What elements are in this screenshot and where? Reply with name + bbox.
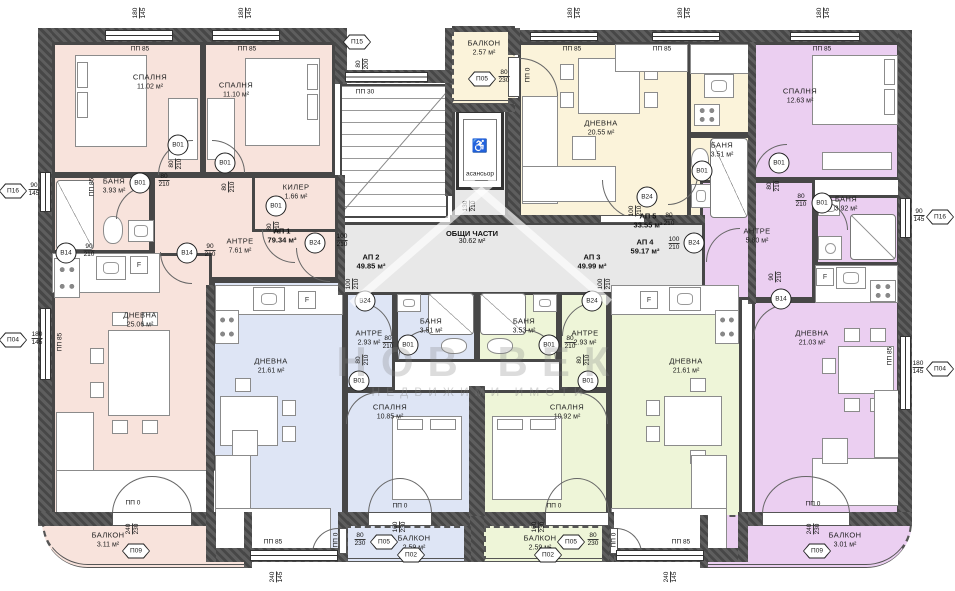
room-label: БАНЯ3.51 м²: [711, 141, 734, 160]
room-name: БАНЯ: [513, 317, 536, 327]
room-area: 2.57 м²: [468, 48, 501, 57]
room-name: СПАЛНЯ: [133, 73, 167, 83]
dim-b: 210: [205, 251, 216, 259]
fridge: F: [816, 268, 834, 286]
door-dim: 80210: [159, 173, 170, 189]
wall: [206, 512, 216, 562]
door-dim: 100210: [669, 236, 680, 252]
door-tag: B01: [215, 153, 236, 174]
dim-a: 80: [565, 335, 576, 342]
furniture: [560, 64, 574, 80]
room-label: КИЛЕР1.66 м²: [283, 183, 310, 202]
furniture: [560, 92, 574, 108]
door-tag: B01: [692, 161, 713, 182]
door-tag: B14: [177, 243, 198, 264]
furniture: [77, 62, 88, 88]
room-name: БАНЯ: [103, 177, 126, 187]
dim-b: 145: [913, 368, 924, 376]
room-area: 12.63 м²: [783, 96, 817, 105]
room-label: СПАЛНЯ11.02 м²: [133, 73, 167, 92]
furniture: [870, 328, 886, 342]
dim-b: 210: [229, 182, 237, 193]
furniture: [646, 426, 660, 442]
dim-b: 145: [246, 8, 254, 19]
window-tag-label: П16: [927, 211, 953, 224]
door-dim: 80210: [576, 355, 592, 366]
dim-a: 80: [664, 212, 675, 219]
dim-b: 210: [664, 220, 675, 228]
furniture: [572, 136, 596, 160]
wall: [445, 104, 515, 112]
room-label: СПАЛНЯ10.85 м²: [373, 403, 407, 422]
dim-b: 210: [636, 206, 644, 217]
common-area-name: ОБЩИ ЧАСТИ: [446, 229, 498, 238]
sink: [836, 267, 866, 289]
room-name: СПАЛНЯ: [783, 87, 817, 97]
door-tag: B14: [56, 243, 77, 264]
dim-b: 230: [355, 540, 366, 548]
wall: [38, 28, 52, 525]
stove: [715, 310, 739, 344]
apartment-area: 49.99 м²: [578, 262, 607, 271]
window-dim: 240230: [125, 524, 141, 535]
room-area: 3.53 м²: [513, 326, 536, 335]
room-area: 7.61 м²: [226, 246, 253, 255]
room-name: БАЛКОН: [398, 534, 431, 544]
room-name: ДНЕВНА: [584, 119, 617, 129]
furniture: [615, 44, 688, 72]
furniture: [690, 378, 706, 392]
fridge: F: [130, 256, 148, 274]
room-area: 10.85 м²: [373, 412, 407, 421]
room-name: БАЛКОН: [829, 531, 862, 541]
room-label: СПАЛНЯ11.10 м²: [219, 81, 253, 100]
furniture: [884, 89, 895, 115]
dimension-pair: 240145: [663, 572, 679, 583]
dim-b: 210: [669, 244, 680, 252]
room-label: БАЛКОН2.57 м²: [468, 39, 501, 58]
room-name: БАЛКОН: [524, 534, 557, 544]
wall: [445, 104, 452, 196]
dim-b: 210: [159, 181, 170, 189]
fridge: F: [298, 291, 316, 309]
window-tag: П04: [0, 333, 27, 348]
window-tag-label: П09: [123, 545, 149, 558]
room-area: 10.92 м²: [550, 412, 584, 421]
dim-b: 145: [914, 216, 925, 224]
furniture: [56, 412, 94, 476]
stove: [694, 104, 720, 126]
door-dim: 80210: [565, 335, 576, 351]
furniture: [646, 400, 660, 416]
furniture: [497, 419, 523, 430]
door-tag: B01: [539, 335, 560, 356]
room-area: 1.66 м²: [283, 192, 310, 201]
window-tag-label: П05: [371, 536, 397, 549]
dim-b: 145: [685, 8, 693, 19]
room-name: АНТРЕ: [571, 329, 598, 339]
window-dim: 180145: [32, 331, 43, 347]
room-name: ДНЕВНА: [123, 311, 156, 321]
dim-a: 80: [221, 182, 228, 193]
door-tag: B24: [637, 187, 658, 208]
furniture: [307, 94, 318, 120]
sill-label: ПП 85: [264, 539, 282, 546]
door-opening: [545, 512, 609, 526]
dim-b: 210: [565, 343, 576, 351]
wall: [602, 526, 609, 562]
dim-b: 210: [605, 279, 613, 290]
room-area: 3.01 м²: [829, 540, 862, 549]
sill-label: ПП 85: [653, 46, 671, 53]
dim-b: 210: [470, 201, 478, 212]
dim-b: 230: [539, 522, 547, 533]
room-area: 21.61 м²: [669, 366, 702, 375]
dim-b: 210: [274, 222, 282, 233]
window: [345, 72, 428, 82]
door-tag: B01: [349, 371, 370, 392]
window: [900, 336, 911, 410]
dim-b: 145: [29, 190, 40, 198]
window-dim: 160230: [392, 522, 408, 533]
room-area: 11.02 м²: [133, 82, 167, 91]
room-area: 3.92 м²: [835, 204, 858, 213]
furniture: [844, 398, 860, 412]
furniture: [282, 400, 296, 416]
dimension-pair: 180145: [567, 8, 583, 19]
room-name: СПАЛНЯ: [550, 403, 584, 413]
sink: [533, 294, 557, 312]
room-label: БАНЯ3.53 м²: [513, 317, 536, 336]
dim-b: 145: [575, 8, 583, 19]
room-area: 2.93 м²: [355, 338, 382, 347]
dim-a: 240: [806, 524, 813, 535]
room-name: ДНЕВНА: [254, 357, 287, 367]
door-dim: 100210: [345, 279, 361, 290]
toilet: [441, 338, 467, 354]
door-dim: 80210: [383, 335, 394, 351]
dim-a: 160: [392, 522, 399, 533]
elevator-label: асансьор: [466, 171, 494, 178]
sill-label: ПП 0: [806, 501, 821, 508]
window-tag-label: П04: [0, 334, 26, 347]
window-dim: 80230: [355, 532, 366, 548]
sill-label: ПП 85: [238, 46, 256, 53]
window: [790, 32, 860, 41]
dim-a: 80: [499, 69, 510, 76]
furniture: [282, 426, 296, 442]
sill-label: ПП 0: [547, 503, 562, 510]
dimension-pair: 240145: [269, 572, 285, 583]
window-tag-label: П05: [558, 536, 584, 549]
window: [212, 30, 280, 41]
dim-b: 145: [32, 339, 43, 347]
dim-a: 80: [796, 193, 807, 200]
room-name: СПАЛНЯ: [219, 81, 253, 91]
door-dim: 80210: [796, 193, 807, 209]
room-label: БАНЯ3.92 м²: [835, 195, 858, 214]
door-tag: B01: [168, 135, 189, 156]
door-dim: 90210: [768, 272, 784, 283]
dim-a: 80: [355, 532, 366, 539]
door-tag: B14: [771, 289, 792, 310]
room-label: ДНЕВНА20.55 м²: [584, 119, 617, 138]
dim-a: 240: [663, 572, 670, 583]
apartment-label: АП 459.17 м²: [631, 238, 660, 257]
dim-a: 80: [766, 181, 773, 192]
room-name: КИЛЕР: [283, 183, 310, 193]
room-area: 20.55 м²: [584, 128, 617, 137]
door-tag: B01: [266, 196, 287, 217]
furniture: [844, 328, 860, 342]
wall: [206, 285, 214, 512]
window: [530, 32, 598, 41]
window-tag-label: П05: [469, 73, 495, 86]
sill-label: ПП 0: [393, 503, 408, 510]
wall: [898, 30, 912, 525]
furniture: [664, 396, 722, 446]
wall: [38, 28, 345, 42]
room-label: БАЛКОН3.11 м²: [92, 531, 125, 550]
sink: [96, 256, 126, 280]
window: [105, 30, 173, 41]
room-label: СПАЛНЯ10.92 м²: [550, 403, 584, 422]
furniture: [90, 382, 104, 398]
dim-a: 80: [266, 222, 273, 233]
door-opening: [112, 512, 192, 526]
window-tag: П15: [343, 35, 371, 50]
dim-b: 230: [400, 522, 408, 533]
apartment-area: 59.17 м²: [631, 247, 660, 256]
dim-b: 210: [774, 181, 782, 192]
door-dim: 100210: [597, 279, 613, 290]
dim-b: 145: [824, 8, 832, 19]
common-area-size: 30.62 м²: [446, 238, 498, 247]
door-tag: B24: [684, 233, 705, 254]
dim-a: 80: [383, 335, 394, 342]
room-area: 3.93 м²: [103, 186, 126, 195]
room-area: 21.61 м²: [254, 366, 287, 375]
apartment-id: АП 4: [631, 238, 660, 247]
dim-b: 230: [133, 524, 141, 535]
dim-b: 145: [140, 8, 148, 19]
dim-b: 145: [277, 572, 285, 583]
dim-a: 90: [914, 208, 925, 215]
window-dim: 240230: [806, 524, 822, 535]
room-name: БАЛКОН: [468, 39, 501, 49]
dim-a: 100: [628, 206, 635, 217]
sink: [128, 220, 154, 242]
sink: [397, 294, 421, 312]
wall: [508, 28, 520, 55]
wheelchair-icon: ♿: [472, 138, 488, 154]
room-area: 11.10 м²: [219, 90, 253, 99]
window: [250, 550, 338, 561]
dimension-pair: 180145: [677, 8, 693, 19]
dim-b: 230: [588, 540, 599, 548]
window-tag-label: П16: [0, 185, 26, 198]
wall: [748, 42, 756, 304]
room-name: БАНЯ: [711, 141, 734, 151]
door-opening: [339, 528, 347, 554]
sill-label: ПП 85: [813, 46, 831, 53]
wall: [452, 26, 515, 32]
window: [40, 172, 51, 212]
dim-b: 145: [671, 572, 679, 583]
furniture: [822, 358, 836, 374]
room-name: БАНЯ: [835, 195, 858, 205]
furniture: [874, 390, 900, 458]
dim-a: 130: [462, 201, 469, 212]
door-tag: B01: [812, 193, 833, 214]
room-name: БАЛКОН: [92, 531, 125, 541]
room-name: БАНЯ: [420, 317, 443, 327]
room-name: ДНЕВНА: [669, 357, 702, 367]
furniture: [690, 44, 750, 74]
room-area: 25.06 м²: [123, 320, 156, 329]
window-tag-label: П15: [344, 36, 370, 49]
stove: [870, 280, 896, 302]
door-dim: 100210: [337, 233, 348, 249]
dim-a: 80: [576, 355, 583, 366]
common-area-label: ОБЩИ ЧАСТИ 30.62 м²: [446, 229, 498, 247]
window: [900, 198, 911, 238]
dim-a: 180: [132, 8, 139, 19]
furniture: [77, 92, 88, 118]
furniture: [108, 330, 170, 416]
dim-b: 210: [176, 159, 184, 170]
furniture: [235, 378, 251, 392]
sill-label: ПП 0: [611, 533, 618, 548]
sill-label: ПП 0: [126, 500, 141, 507]
door-tag: B01: [130, 173, 151, 194]
furniture: [430, 419, 456, 430]
wall: [445, 28, 452, 104]
door-dim: 80210: [766, 181, 782, 192]
door-tag: B01: [398, 335, 419, 356]
room-area: 3.51 м²: [420, 326, 443, 335]
dim-b: 210: [363, 355, 371, 366]
dim-a: 180: [677, 8, 684, 19]
dim-a: 240: [269, 572, 276, 583]
dim-a: 80: [168, 159, 175, 170]
window-dim: 160230: [531, 522, 547, 533]
window: [652, 32, 720, 41]
room-area: 3.11 м²: [92, 540, 125, 549]
room-name: ДНЕВНА: [795, 329, 828, 339]
door-tag: B24: [355, 291, 376, 312]
sill-label: ПП 0: [333, 533, 340, 548]
room-name: АНТРЕ: [355, 329, 382, 339]
room-label: БАНЯ3.51 м²: [420, 317, 443, 336]
dim-b: 210: [796, 201, 807, 209]
dim-b: 210: [353, 279, 361, 290]
dimension-pair: 180145: [816, 8, 832, 19]
wall: [470, 516, 484, 562]
room-label: ДНЕВНА21.61 м²: [669, 357, 702, 376]
apartment-label: АП 249.85 м²: [357, 253, 386, 272]
door-dim: 80210: [221, 182, 237, 193]
dimension-pair: 180145: [132, 8, 148, 19]
door-dim: 80210: [664, 212, 675, 228]
window-tag-label: П04: [927, 363, 953, 376]
door-tag: B01: [769, 153, 790, 174]
furniture: [307, 64, 318, 90]
wall: [738, 512, 748, 562]
door-dim: 80210: [168, 159, 184, 170]
window-tag: П04: [926, 362, 954, 377]
room-label: АНТРЕ7.61 м²: [226, 237, 253, 256]
furniture: [90, 348, 104, 364]
window: [616, 550, 704, 561]
sill-label: ПП 85: [131, 46, 149, 53]
sill-label: ПП 85: [57, 333, 64, 351]
door-dim: 80210: [266, 222, 282, 233]
dim-b: 200: [363, 59, 371, 70]
door-tag: B24: [582, 291, 603, 312]
sill-label: ПП 85: [563, 46, 581, 53]
sill-label: ПП 30: [356, 89, 374, 96]
dim-b: 230: [814, 524, 822, 535]
furniture: [232, 430, 258, 456]
wall: [508, 98, 520, 222]
window-dim: 90145: [29, 182, 40, 198]
dim-a: 80: [355, 59, 362, 70]
window-dim: 80230: [588, 532, 599, 548]
dim-a: 180: [913, 360, 924, 367]
room-area: 3.51 м²: [711, 150, 734, 159]
washing-machine: [818, 236, 842, 260]
toilet: [487, 338, 513, 354]
dim-b: 210: [84, 251, 95, 259]
sink: [253, 287, 285, 311]
dim-a: 240: [125, 524, 132, 535]
door-dim: 90210: [205, 243, 216, 259]
apartment-id: АП 3: [578, 253, 607, 262]
fridge: F: [640, 291, 658, 309]
window-tag: П16: [926, 210, 954, 225]
dim-a: 180: [32, 331, 43, 338]
room-label: ДНЕВНА25.06 м²: [123, 311, 156, 330]
bathtub: [850, 214, 896, 260]
door-dim: 80210: [355, 355, 371, 366]
dim-a: 90: [84, 243, 95, 250]
window-tag-label: П02: [535, 549, 561, 562]
apartment-label: АП 349.99 м²: [578, 253, 607, 272]
room-area: 21.03 м²: [795, 338, 828, 347]
dimension-pair: 180145: [238, 8, 254, 19]
dim-a: 180: [816, 8, 823, 19]
room-name: АНТРЕ: [743, 227, 770, 237]
dim-a: 100: [597, 279, 604, 290]
apartment-area: 79.34 м²: [268, 236, 297, 245]
window-tag-label: П02: [398, 549, 424, 562]
room-label: БАНЯ3.93 м²: [103, 177, 126, 196]
toilet: [103, 216, 123, 244]
dim-a: 180: [238, 8, 245, 19]
dim-a: 100: [345, 279, 352, 290]
dim-a: 100: [669, 236, 680, 243]
apartment-area: 49.85 м²: [357, 262, 386, 271]
room-label: АНТРЕ2.93 м²: [355, 329, 382, 348]
room-label: ДНЕВНА21.61 м²: [254, 357, 287, 376]
apartment-area: 33.55 м²: [634, 221, 663, 230]
dim-a: 90: [29, 182, 40, 189]
wall: [450, 215, 600, 223]
sill-label: ПП 85: [887, 347, 894, 365]
room-area: 5.80 м²: [743, 236, 770, 245]
stove: [54, 258, 80, 298]
